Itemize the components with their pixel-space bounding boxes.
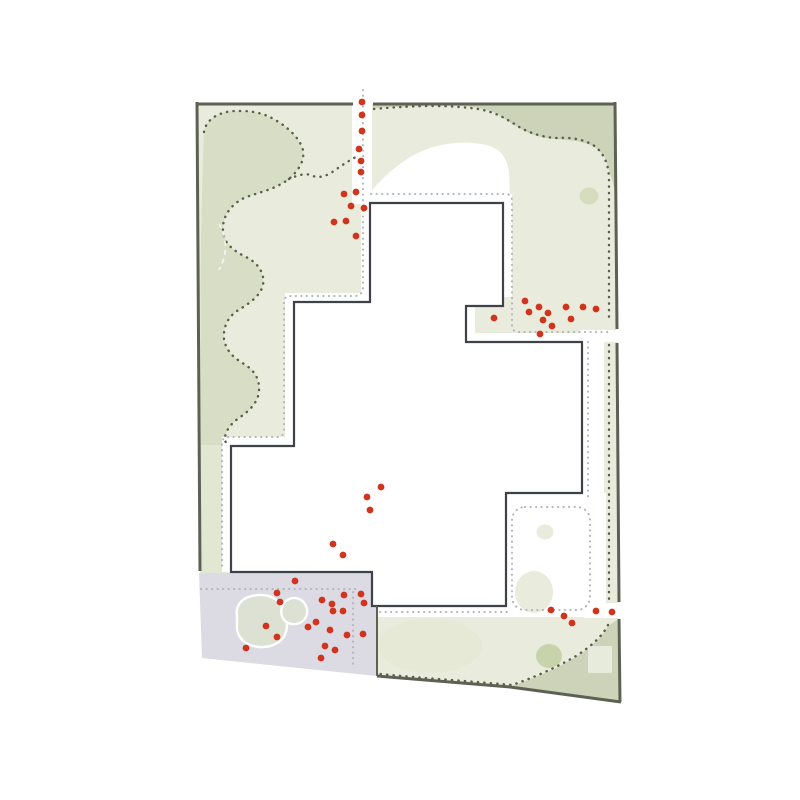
red-point-marker (329, 601, 336, 608)
red-point-marker (367, 507, 374, 514)
red-point-marker (361, 205, 368, 212)
boundary-east-lower (619, 619, 620, 702)
red-point-marker (358, 158, 365, 165)
red-point-marker (343, 218, 350, 225)
red-point-marker (593, 608, 600, 615)
red-point-marker (569, 620, 576, 627)
red-point-marker (491, 315, 498, 322)
red-point-marker (359, 99, 366, 106)
courtyard-blob-large (515, 571, 553, 613)
red-point-marker (274, 590, 281, 597)
red-point-marker (563, 304, 570, 311)
red-point-marker (332, 647, 339, 654)
site-plan-page (0, 0, 800, 800)
shrub-ellipse-top-right (580, 188, 599, 205)
red-point-marker (359, 128, 366, 135)
walkway-north (352, 88, 372, 204)
red-point-marker (568, 316, 575, 323)
red-point-marker (548, 607, 555, 614)
red-point-marker (580, 304, 587, 311)
red-point-marker (348, 203, 355, 210)
site-plan-map (0, 0, 800, 800)
red-point-marker (274, 634, 281, 641)
red-point-marker (330, 608, 337, 615)
red-point-marker (545, 310, 552, 317)
red-point-marker (318, 655, 325, 662)
red-point-marker (319, 597, 326, 604)
lawn-wash-bottom (378, 619, 482, 673)
red-point-marker (330, 541, 337, 548)
red-point-marker (537, 331, 544, 338)
red-point-marker (327, 627, 334, 634)
red-point-marker (522, 298, 529, 305)
red-point-marker (358, 169, 365, 176)
pond-small-lobe (281, 598, 307, 624)
red-point-marker (292, 578, 299, 585)
red-point-marker (263, 623, 270, 630)
red-point-marker (536, 304, 543, 311)
red-point-marker (360, 631, 367, 638)
red-point-marker (353, 233, 360, 240)
red-point-marker (340, 552, 347, 559)
red-point-marker (549, 323, 556, 330)
boundary-east-middle (617, 343, 619, 602)
red-point-marker (340, 608, 347, 615)
red-point-marker (593, 306, 600, 313)
red-point-marker (331, 219, 338, 226)
red-point-marker (305, 624, 312, 631)
red-point-marker (344, 632, 351, 639)
red-point-marker (277, 599, 284, 606)
red-point-marker (243, 645, 250, 652)
red-point-marker (526, 309, 533, 316)
red-point-marker (341, 592, 348, 599)
red-point-marker (361, 600, 368, 607)
red-point-marker (364, 494, 371, 501)
red-point-marker (353, 189, 360, 196)
red-point-marker (356, 146, 363, 153)
red-point-marker (322, 643, 329, 650)
red-point-marker (341, 191, 348, 198)
shrub-ellipse-bottom (536, 644, 562, 668)
red-point-marker (561, 613, 568, 620)
boundary-east-upper (615, 102, 617, 329)
red-point-marker (609, 609, 616, 616)
red-point-marker (359, 112, 366, 119)
courtyard-blob-small (537, 525, 554, 540)
courtyard-ground (500, 493, 606, 617)
red-point-marker (540, 317, 547, 324)
red-point-marker (358, 591, 365, 598)
red-point-marker (313, 619, 320, 626)
red-point-marker (378, 484, 385, 491)
pale-patch-bottom-right (588, 646, 612, 673)
